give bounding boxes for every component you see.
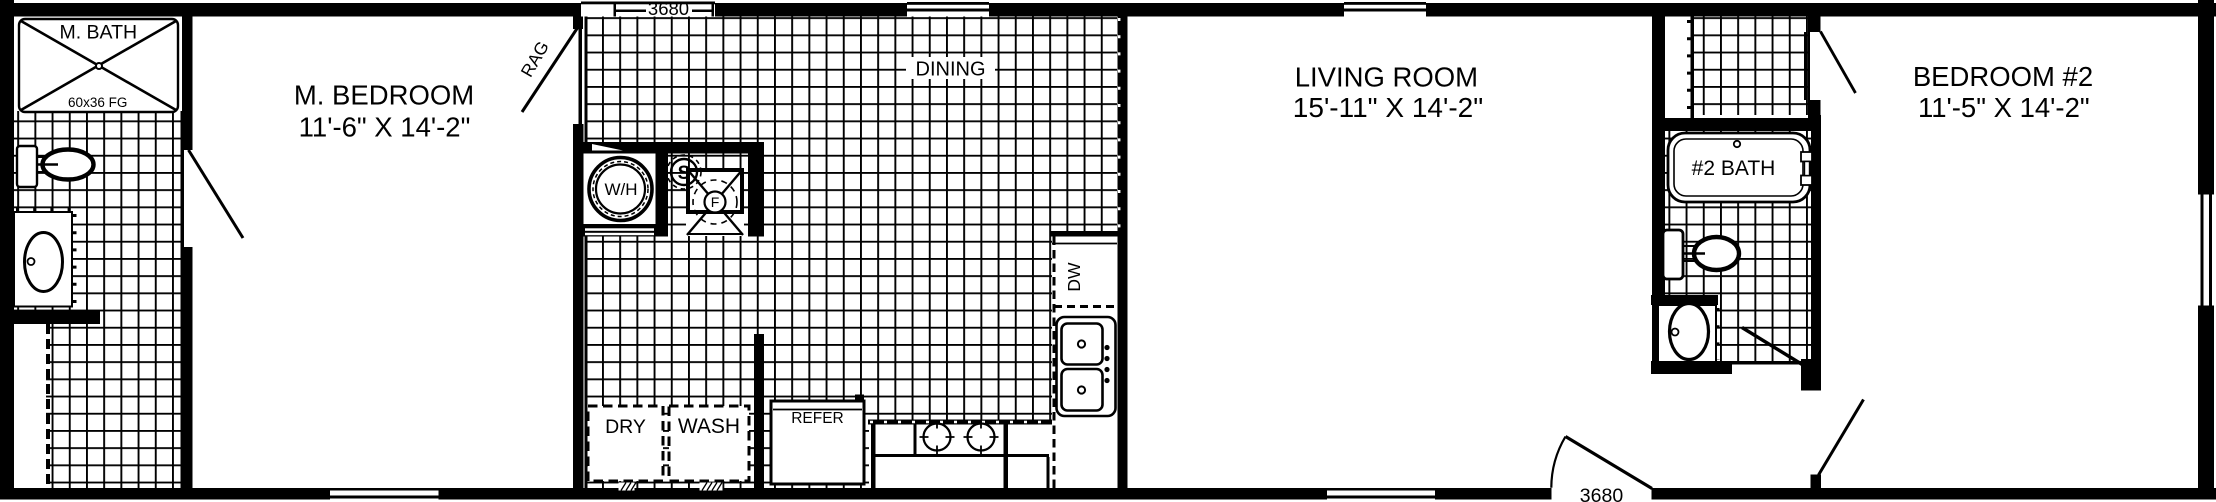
svg-text:60x36 FG: 60x36 FG — [68, 95, 127, 110]
svg-text:REFER: REFER — [791, 410, 844, 427]
svg-text:F: F — [711, 194, 720, 210]
svg-text:DW: DW — [1064, 262, 1084, 292]
svg-text:15'-11" X 14'-2": 15'-11" X 14'-2" — [1293, 92, 1483, 123]
svg-text:W/H: W/H — [604, 180, 637, 199]
svg-text:DINING: DINING — [916, 58, 986, 80]
svg-text:BEDROOM #2: BEDROOM #2 — [1913, 61, 2093, 92]
svg-text:DRY: DRY — [605, 416, 646, 438]
svg-text:WASH: WASH — [678, 415, 740, 438]
svg-text:3680: 3680 — [648, 0, 689, 19]
svg-text:S: S — [678, 163, 691, 184]
svg-text:M. BEDROOM: M. BEDROOM — [294, 80, 474, 111]
svg-text:#2 BATH: #2 BATH — [1692, 157, 1776, 180]
svg-text:3680: 3680 — [1580, 485, 1624, 502]
svg-text:11'-5" X 14'-2": 11'-5" X 14'-2" — [1918, 92, 2090, 123]
svg-text:M. BATH: M. BATH — [59, 22, 137, 44]
svg-text:11'-6" X 14'-2": 11'-6" X 14'-2" — [299, 112, 471, 143]
svg-text:LIVING ROOM: LIVING ROOM — [1295, 62, 1478, 93]
